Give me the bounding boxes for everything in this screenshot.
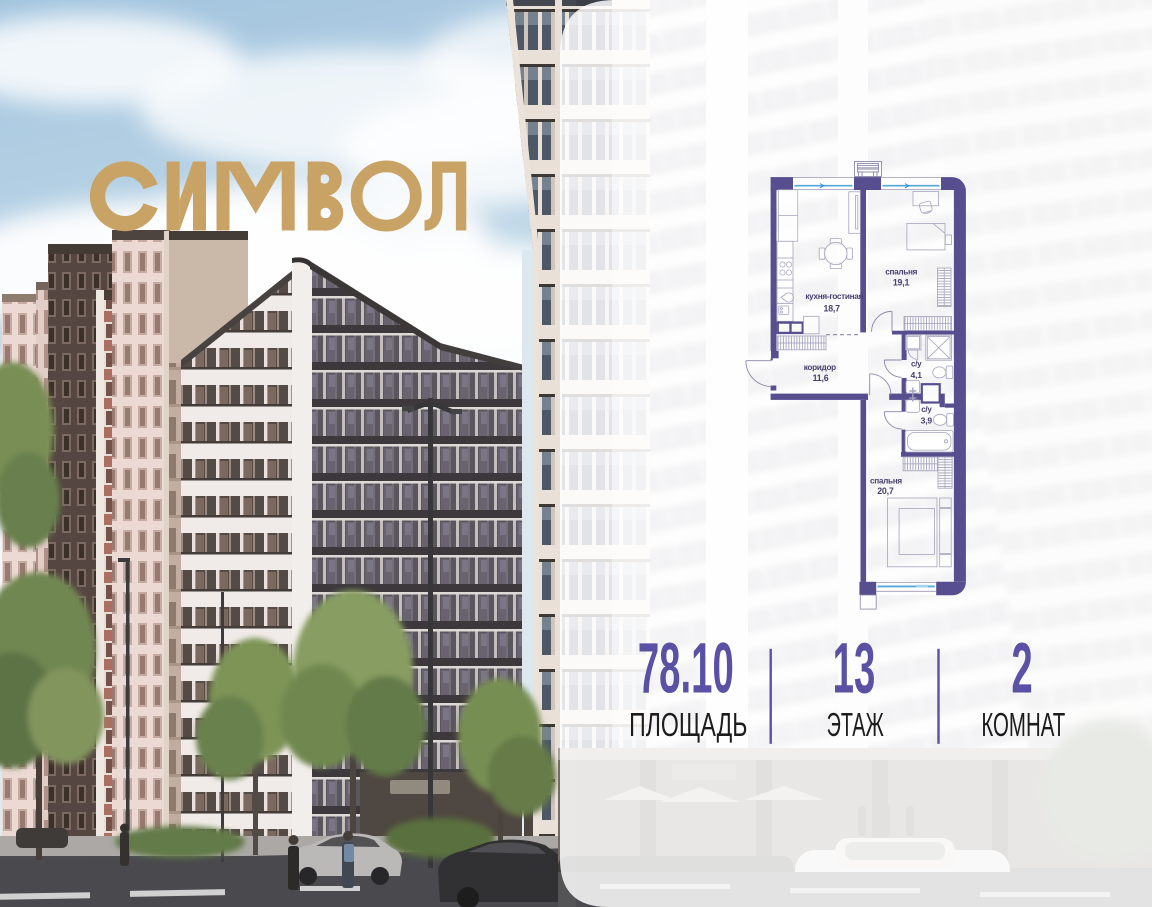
svg-text:13: 13: [833, 629, 876, 709]
svg-text:с/у: с/у: [911, 360, 922, 369]
svg-text:2: 2: [1011, 629, 1032, 709]
svg-text:18,7: 18,7: [824, 303, 841, 313]
svg-text:спальня: спальня: [885, 267, 917, 276]
svg-text:ЭТАЖ: ЭТАЖ: [827, 706, 884, 744]
svg-text:4,1: 4,1: [911, 370, 923, 380]
svg-text:20,7: 20,7: [877, 486, 894, 496]
svg-text:спальня: спальня: [870, 477, 902, 486]
svg-text:с/у: с/у: [921, 405, 932, 414]
svg-text:3,9: 3,9: [921, 416, 933, 426]
svg-text:19,1: 19,1: [893, 278, 910, 288]
svg-text:коридор: коридор: [804, 363, 836, 372]
svg-text:78.10: 78.10: [638, 629, 734, 709]
svg-text:11,6: 11,6: [813, 373, 829, 383]
svg-text:кухня-гостиная: кухня-гостиная: [805, 292, 863, 301]
svg-text:ПЛОЩАДЬ: ПЛОЩАДЬ: [629, 707, 747, 744]
svg-text:КОМНАТ: КОМНАТ: [981, 706, 1065, 743]
